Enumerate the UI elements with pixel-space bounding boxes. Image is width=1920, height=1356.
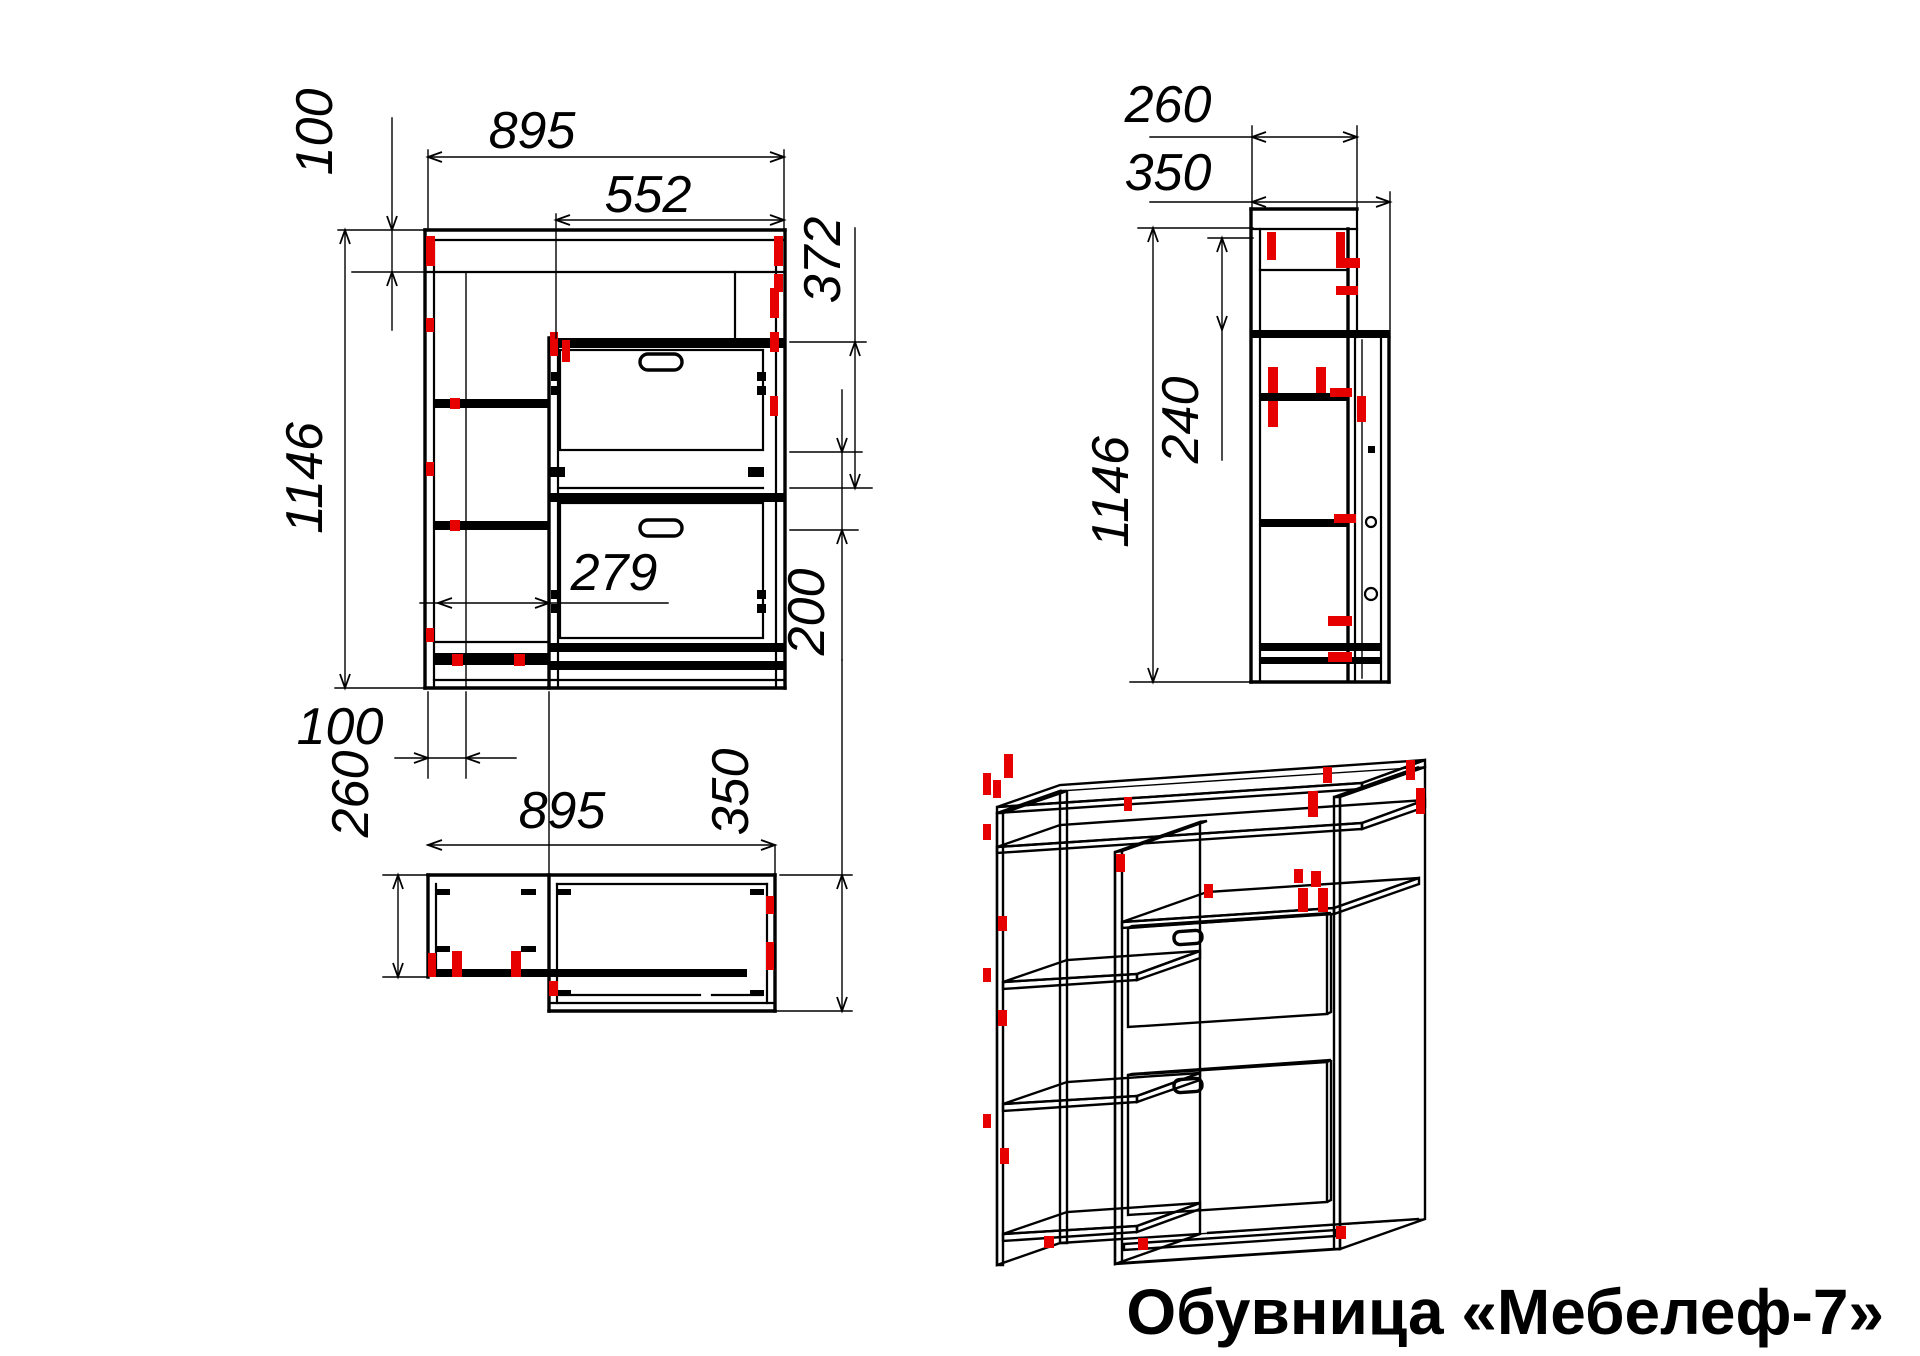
dim-front-drawer-width: 552 bbox=[605, 166, 692, 224]
side-dimensions: 260 350 1146 240 bbox=[1082, 76, 1390, 682]
dim-front-overall-width: 895 bbox=[489, 102, 577, 160]
dim-plan-width: 895 bbox=[519, 782, 607, 840]
drawer-handle bbox=[1174, 930, 1203, 945]
dim-front-base-inset: 100 bbox=[297, 698, 384, 756]
dim-side-top-section: 240 bbox=[1152, 377, 1210, 465]
side-connectors bbox=[1267, 232, 1366, 662]
dim-side-top-depth: 260 bbox=[1124, 76, 1212, 134]
side-view-drawing bbox=[1251, 209, 1390, 682]
dim-front-top-inset: 100 bbox=[286, 89, 344, 176]
dim-plan-left-depth: 260 bbox=[322, 751, 380, 839]
plan-view: 260 895 350 bbox=[322, 660, 852, 1011]
iso-wireframe bbox=[983, 754, 1425, 1265]
drawing-title: Обувница «Мебелеф-7» bbox=[1126, 1276, 1884, 1348]
drawer-handle bbox=[1174, 1078, 1203, 1093]
side-view: 260 350 1146 240 bbox=[1082, 76, 1390, 682]
plan-view-drawing bbox=[428, 875, 775, 1011]
dim-front-lower-gap: 200 bbox=[778, 569, 836, 657]
dim-plan-right-depth: 350 bbox=[702, 749, 760, 836]
dim-front-flap: 372 bbox=[794, 217, 852, 304]
dim-front-height: 1146 bbox=[276, 422, 334, 534]
dim-side-depth: 350 bbox=[1125, 144, 1212, 202]
front-view-drawing bbox=[425, 230, 785, 688]
isometric-view bbox=[983, 754, 1425, 1265]
dim-front-shelf-width: 279 bbox=[570, 544, 658, 602]
blueprint-canvas: 895 552 100 1146 372 200 279 100 bbox=[0, 0, 1920, 1356]
dim-side-height: 1146 bbox=[1082, 436, 1140, 548]
blueprint-page: 895 552 100 1146 372 200 279 100 bbox=[0, 0, 1920, 1356]
plan-connectors bbox=[428, 896, 774, 996]
